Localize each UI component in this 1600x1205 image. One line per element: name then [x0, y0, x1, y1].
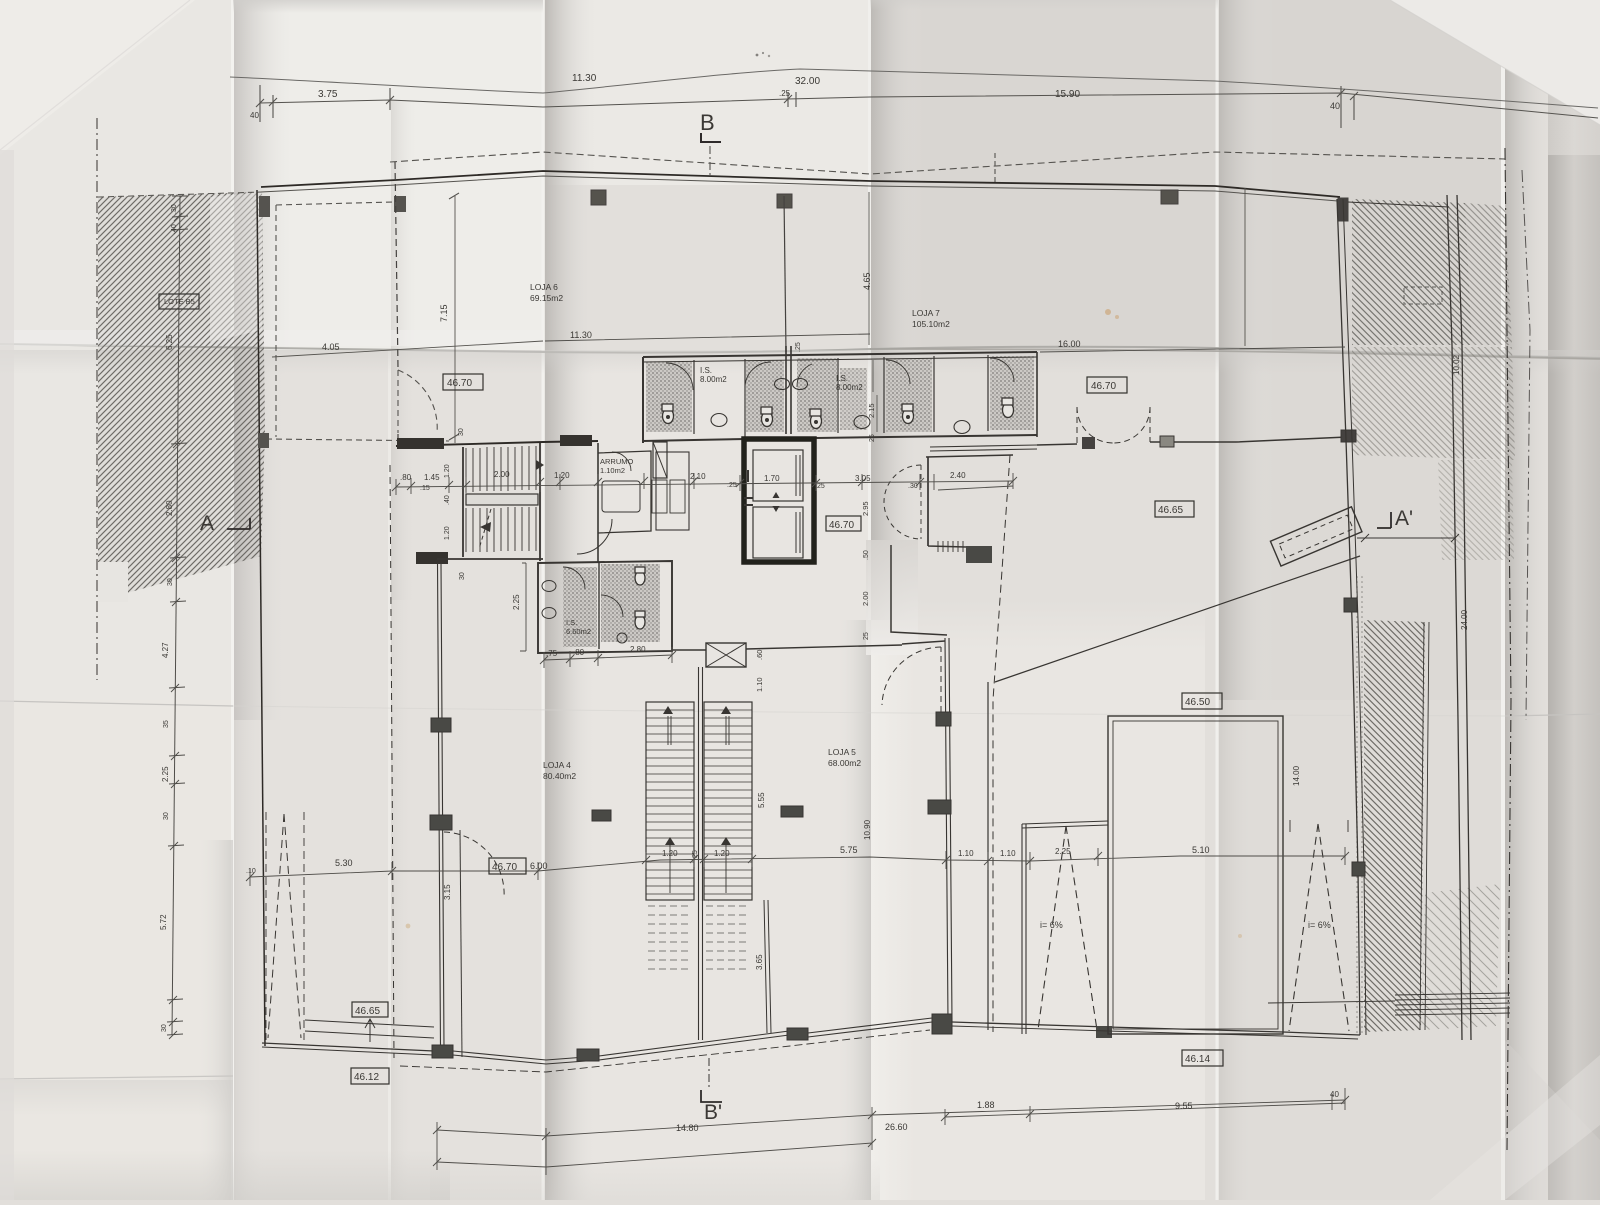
svg-text:.25: .25 — [727, 482, 737, 489]
svg-text:2.00: 2.00 — [494, 470, 510, 479]
svg-text:2.00: 2.00 — [861, 591, 870, 606]
svg-text:B': B' — [704, 1101, 722, 1124]
svg-text:.10: .10 — [246, 868, 256, 875]
svg-text:LOTE B5: LOTE B5 — [164, 297, 195, 306]
svg-text:5.30: 5.30 — [335, 858, 353, 868]
svg-text:26.60: 26.60 — [885, 1122, 908, 1132]
svg-text:1.70: 1.70 — [764, 474, 780, 483]
svg-text:ARRUMO: ARRUMO — [600, 457, 633, 466]
svg-text:30: 30 — [167, 578, 174, 586]
svg-text:1.45: 1.45 — [424, 473, 440, 482]
svg-text:11.30: 11.30 — [572, 73, 597, 84]
svg-text:10.90: 10.90 — [863, 819, 872, 840]
svg-text:69.15m2: 69.15m2 — [530, 293, 563, 303]
svg-text:1.10: 1.10 — [1000, 849, 1016, 858]
svg-text:30: 30 — [459, 572, 466, 580]
svg-text:46.65: 46.65 — [1158, 505, 1183, 516]
svg-text:9.55: 9.55 — [1175, 1101, 1193, 1111]
svg-text:46.70: 46.70 — [492, 862, 517, 873]
svg-text:2.80: 2.80 — [630, 645, 646, 654]
svg-text:2.40: 2.40 — [950, 471, 966, 480]
svg-text:.30: .30 — [171, 204, 178, 214]
svg-text:A': A' — [1395, 507, 1413, 530]
svg-text:35: 35 — [163, 720, 170, 728]
svg-text:3.15: 3.15 — [443, 884, 452, 900]
svg-text:B: B — [700, 110, 715, 135]
svg-text:15.90: 15.90 — [1055, 89, 1080, 100]
svg-text:I.S.: I.S. — [700, 366, 712, 375]
svg-text:3.05: 3.05 — [855, 474, 871, 483]
svg-text:.40: .40 — [444, 495, 451, 505]
svg-text:30: 30 — [163, 812, 170, 820]
svg-text:1.10: 1.10 — [958, 849, 974, 858]
svg-text:30: 30 — [161, 1024, 168, 1032]
svg-text:I.S.: I.S. — [836, 374, 848, 383]
svg-text:2.10: 2.10 — [690, 472, 706, 481]
svg-text:40: 40 — [1330, 101, 1340, 111]
svg-text:25: 25 — [869, 434, 876, 442]
svg-text:2.25: 2.25 — [161, 766, 170, 782]
svg-text:14.00: 14.00 — [1292, 765, 1301, 786]
svg-text:.80: .80 — [400, 473, 412, 482]
svg-text:LOJA 7: LOJA 7 — [912, 308, 940, 318]
svg-text:46.50: 46.50 — [1185, 697, 1210, 708]
svg-text:10.02: 10.02 — [1452, 354, 1461, 375]
svg-text:7.15: 7.15 — [439, 304, 449, 322]
svg-text:1.20: 1.20 — [444, 526, 451, 540]
svg-text:1.20: 1.20 — [714, 849, 730, 858]
svg-text:.50: .50 — [863, 550, 870, 560]
svg-text:46.70: 46.70 — [447, 378, 472, 389]
svg-text:LOJA 5: LOJA 5 — [828, 747, 856, 757]
svg-text:8.00m2: 8.00m2 — [700, 375, 727, 384]
svg-text:6.60m2: 6.60m2 — [566, 627, 591, 636]
svg-text:46.12: 46.12 — [354, 1072, 379, 1083]
svg-text:2.25: 2.25 — [1055, 847, 1071, 856]
svg-text:24.00: 24.00 — [1460, 609, 1469, 630]
svg-text:32.00: 32.00 — [795, 76, 820, 87]
svg-text:80.40m2: 80.40m2 — [543, 771, 576, 781]
svg-text:.25: .25 — [795, 342, 802, 352]
svg-text:1.88: 1.88 — [977, 1100, 995, 1110]
svg-text:2.95: 2.95 — [861, 501, 870, 516]
svg-text:1.20: 1.20 — [554, 471, 570, 480]
svg-text:46.65: 46.65 — [355, 1006, 380, 1017]
svg-text:2.25: 2.25 — [512, 594, 521, 610]
svg-text:.60: .60 — [755, 650, 764, 660]
svg-text:1.10: 1.10 — [755, 677, 764, 692]
svg-text:1.20: 1.20 — [444, 464, 451, 478]
svg-text:5.75: 5.75 — [840, 845, 858, 855]
svg-text:6.25: 6.25 — [165, 334, 174, 350]
svg-text:14.80: 14.80 — [676, 1123, 699, 1133]
svg-text:16.00: 16.00 — [1058, 339, 1081, 349]
svg-text:i= 6%: i= 6% — [1040, 920, 1063, 930]
svg-text:4.65: 4.65 — [862, 272, 872, 290]
svg-text:.75: .75 — [546, 649, 558, 658]
svg-text:40: 40 — [250, 111, 259, 120]
svg-text:25: 25 — [692, 850, 699, 858]
svg-text:6.00: 6.00 — [530, 861, 548, 871]
svg-text:1.20: 1.20 — [662, 849, 678, 858]
svg-text:2.80: 2.80 — [165, 500, 174, 516]
svg-text:i= 6%: i= 6% — [1308, 920, 1331, 930]
svg-text:46.70: 46.70 — [829, 520, 854, 531]
svg-text:LOJA 6: LOJA 6 — [530, 282, 558, 292]
svg-text:46.14: 46.14 — [1185, 1054, 1210, 1065]
svg-text:.25: .25 — [815, 483, 825, 490]
svg-text:4.27: 4.27 — [161, 642, 170, 658]
svg-text:5.10: 5.10 — [1192, 845, 1210, 855]
svg-text:5.55: 5.55 — [757, 792, 766, 808]
svg-text:68.00m2: 68.00m2 — [828, 758, 861, 768]
svg-text:I.S.: I.S. — [566, 618, 577, 627]
svg-text:3.75: 3.75 — [318, 89, 338, 100]
svg-text:40: 40 — [1330, 1090, 1339, 1099]
svg-text:2.15: 2.15 — [867, 403, 876, 418]
svg-text:25: 25 — [863, 632, 870, 640]
svg-text:.80: .80 — [573, 648, 585, 657]
svg-text:40: 40 — [171, 224, 178, 232]
svg-text:46.70: 46.70 — [1091, 381, 1116, 392]
svg-text:LOJA 4: LOJA 4 — [543, 760, 571, 770]
svg-text:3.65: 3.65 — [755, 954, 764, 970]
svg-text:8.00m2: 8.00m2 — [836, 383, 863, 392]
svg-text:.30: .30 — [908, 483, 918, 490]
svg-text:.25: .25 — [779, 89, 791, 98]
svg-text:.15: .15 — [420, 485, 430, 492]
svg-text:30: 30 — [458, 428, 465, 436]
svg-text:105.10m2: 105.10m2 — [912, 319, 950, 329]
svg-text:1.10m2: 1.10m2 — [600, 466, 625, 475]
svg-text:11.30: 11.30 — [570, 330, 592, 340]
svg-text:4.05: 4.05 — [322, 342, 340, 352]
svg-text:5.72: 5.72 — [159, 914, 168, 930]
svg-text:A: A — [200, 512, 214, 535]
